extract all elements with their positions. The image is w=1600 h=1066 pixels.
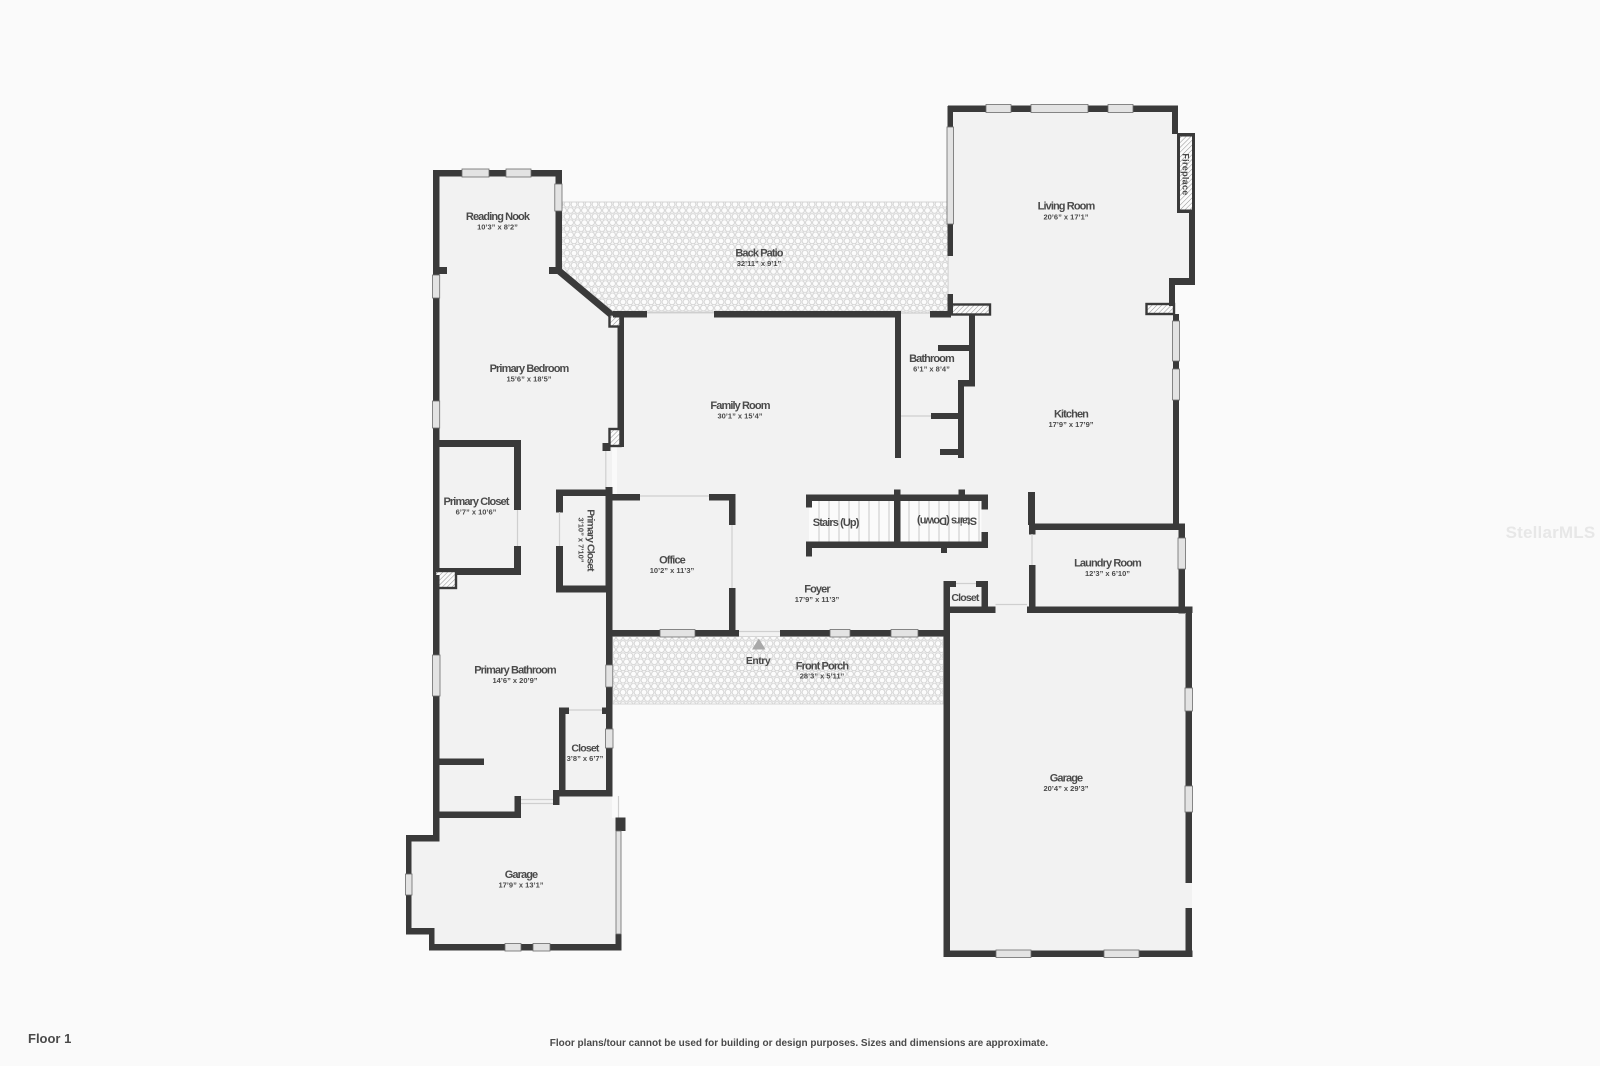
svg-text:Entry: Entry [746,655,771,667]
svg-text:Garage: Garage [505,869,538,881]
svg-text:Stairs (Up): Stairs (Up) [813,517,860,529]
svg-text:Closet: Closet [571,743,600,755]
svg-text:Fireplace: Fireplace [1181,153,1191,195]
svg-text:Primary Bedroom: Primary Bedroom [490,363,570,375]
svg-text:30’1” x 15’4”: 30’1” x 15’4” [717,412,762,421]
svg-text:12’3” x 6’10”: 12’3” x 6’10” [1085,569,1130,578]
svg-text:14’6” x 20’9”: 14’6” x 20’9” [492,676,537,685]
svg-text:3’8” x 6’7”: 3’8” x 6’7” [567,754,604,763]
svg-text:Primary Bathroom: Primary Bathroom [474,665,557,677]
svg-text:Kitchen: Kitchen [1054,409,1089,421]
svg-text:Stairs (Down): Stairs (Down) [917,515,977,527]
svg-text:StellarMLS: StellarMLS [1506,523,1596,542]
svg-text:10’3” x 8’2”: 10’3” x 8’2” [477,223,518,232]
svg-text:Office: Office [659,555,686,567]
svg-text:Closet: Closet [951,592,980,604]
svg-text:20’4” x 29’3”: 20’4” x 29’3” [1043,784,1088,793]
svg-text:Primary Closet: Primary Closet [443,496,509,508]
svg-text:28’3” x 5’11”: 28’3” x 5’11” [800,672,845,681]
svg-text:Bathroom: Bathroom [909,353,955,365]
svg-text:Garage: Garage [1050,773,1083,785]
svg-text:6’1” x 8’4”: 6’1” x 8’4” [913,365,950,374]
svg-text:Floor plans/tour cannot be use: Floor plans/tour cannot be used for buil… [550,1038,1049,1049]
svg-text:17’9” x 17’9”: 17’9” x 17’9” [1048,420,1093,429]
svg-text:15’6” x 18’5”: 15’6” x 18’5” [506,375,551,384]
svg-text:10’2” x 11’3”: 10’2” x 11’3” [650,566,695,575]
svg-text:32’11” x 9’1”: 32’11” x 9’1” [737,259,782,268]
svg-text:Laundry Room: Laundry Room [1074,558,1142,570]
svg-text:Family Room: Family Room [710,400,770,412]
svg-text:17’9” x 13’1”: 17’9” x 13’1” [498,881,543,890]
svg-text:Back Patio: Back Patio [735,248,783,260]
svg-text:Reading Nook: Reading Nook [466,211,531,223]
svg-text:3’10” x 7’10”: 3’10” x 7’10” [577,517,586,562]
svg-text:17’9” x 11’3”: 17’9” x 11’3” [795,595,840,604]
svg-text:20’6” x 17’1”: 20’6” x 17’1” [1043,213,1088,222]
svg-text:6’7” x 10’6”: 6’7” x 10’6” [456,508,497,517]
svg-text:Floor 1: Floor 1 [28,1031,71,1046]
svg-text:Foyer: Foyer [804,584,831,596]
svg-text:Living Room: Living Room [1038,201,1096,213]
